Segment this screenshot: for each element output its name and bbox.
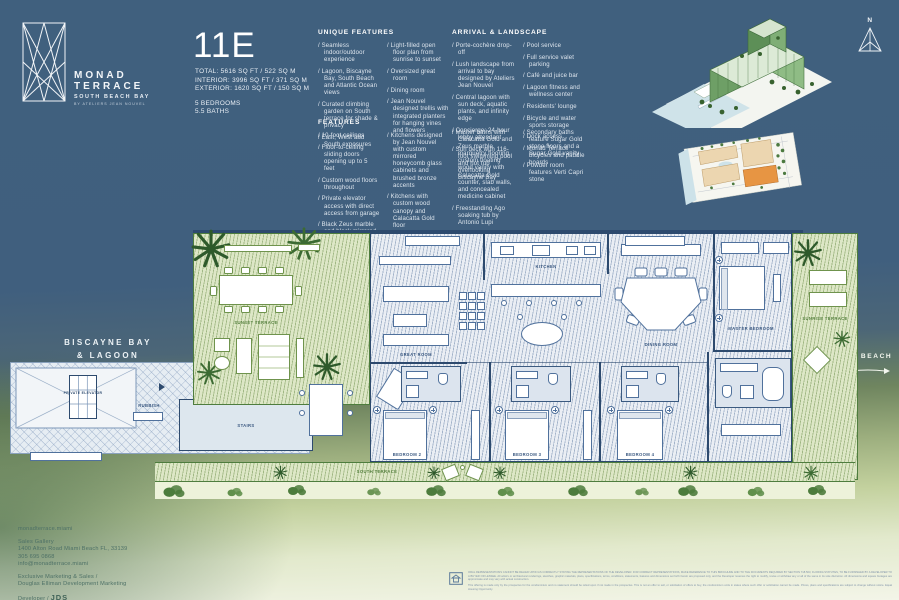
landscape-strip bbox=[155, 482, 855, 499]
vanity bbox=[626, 371, 648, 379]
dining-table-group bbox=[613, 266, 709, 338]
stool bbox=[551, 300, 557, 306]
feature-item: Floor-to-ceiling sliding doors opening u… bbox=[318, 145, 380, 173]
side-table-icon bbox=[551, 406, 559, 414]
feature-item: Freestanding Ago soaking tub by Antonio … bbox=[452, 206, 516, 227]
footer-gallery: Sales Gallery bbox=[18, 539, 127, 546]
vanity bbox=[516, 371, 538, 379]
feature-item: Kitchens with custom wood canopy and Cal… bbox=[387, 194, 449, 229]
built-in bbox=[405, 236, 460, 246]
built-in bbox=[625, 236, 685, 246]
lounge-chair bbox=[809, 270, 847, 285]
stool bbox=[576, 300, 582, 306]
chair bbox=[258, 267, 267, 274]
chair bbox=[347, 410, 353, 416]
unit-specs: TOTAL: 5616 SQ FT / 522 SQ M INTERIOR: 3… bbox=[195, 68, 309, 117]
unit-bedrooms: 5 BEDROOMS bbox=[195, 100, 309, 109]
sofa bbox=[383, 286, 449, 302]
wine-cell bbox=[459, 302, 467, 310]
bath bbox=[511, 366, 571, 402]
wine-cell bbox=[477, 302, 485, 310]
master-bath bbox=[715, 358, 791, 408]
shrub-icon bbox=[675, 484, 701, 497]
footer-marketing-2: Douglas Elliman Development Marketing bbox=[18, 581, 127, 588]
feature-item: Private elevator access with direct acce… bbox=[318, 196, 380, 217]
compass-icon bbox=[856, 26, 884, 54]
private-elevator-room bbox=[69, 375, 97, 419]
feature-item: Full service valet parking bbox=[523, 55, 587, 69]
wine-cell bbox=[459, 322, 467, 330]
cabinet-shelves bbox=[259, 335, 289, 379]
shrub-icon bbox=[365, 487, 383, 496]
bath bbox=[401, 366, 461, 402]
footer-email[interactable]: info@monadterrace.miami bbox=[18, 561, 127, 568]
south-terrace-label: SOUTH TERRACE bbox=[345, 469, 409, 474]
lounge-chair-angled bbox=[465, 464, 484, 482]
shrub-icon bbox=[745, 486, 767, 497]
closet bbox=[763, 242, 789, 254]
vanity bbox=[406, 371, 428, 379]
south-terrace: SOUTH TERRACE bbox=[155, 462, 855, 482]
pillow bbox=[507, 412, 547, 419]
lounge-chair bbox=[214, 338, 230, 352]
shrub-icon bbox=[225, 487, 245, 497]
floor-plan: SUNSET TERRACE GREAT ROOM bbox=[155, 230, 860, 500]
stool bbox=[526, 300, 532, 306]
lounge-chair bbox=[809, 292, 847, 307]
shower bbox=[516, 385, 529, 398]
shrub-icon bbox=[633, 487, 651, 496]
lounge-sofa bbox=[236, 338, 252, 374]
wine-cell bbox=[468, 322, 476, 330]
shrub-icon bbox=[423, 484, 449, 497]
outdoor-dining-table bbox=[219, 275, 293, 305]
chair bbox=[258, 306, 267, 313]
chair bbox=[210, 286, 217, 296]
shower bbox=[626, 385, 639, 398]
toilet bbox=[438, 373, 448, 385]
pillow bbox=[721, 268, 728, 310]
bench bbox=[773, 274, 781, 302]
wine-cell bbox=[477, 322, 485, 330]
brand-name-line1: MONAD bbox=[74, 70, 150, 81]
lounge-chair-angled bbox=[803, 346, 831, 374]
disclaimer-paragraph-1: ORAL REPRESENTATIONS CANNOT BE RELIED UP… bbox=[468, 571, 892, 582]
kitchen-label: KITCHEN bbox=[516, 264, 576, 269]
double-vanity bbox=[720, 363, 758, 372]
toilet bbox=[656, 373, 666, 385]
feature-item: Lagoon, Biscayne Bay, South Beach and At… bbox=[318, 69, 380, 97]
compass-north-label: N bbox=[856, 17, 884, 24]
kitchen-island bbox=[491, 284, 601, 297]
planter bbox=[296, 338, 304, 378]
palm-icon bbox=[793, 238, 823, 268]
side-table-round bbox=[460, 465, 465, 470]
feature-item: Residents' lounge bbox=[523, 104, 587, 111]
unit-exterior: EXTERIOR: 1620 SQ FT / 150 SQ M bbox=[195, 85, 309, 94]
feature-item: Kitchens designed by Jean Nouvel with cu… bbox=[387, 133, 449, 190]
palm-icon bbox=[833, 330, 851, 348]
bath bbox=[621, 366, 679, 402]
chair bbox=[275, 306, 284, 313]
feature-item: Seamless indoor/outdoor experience bbox=[318, 43, 380, 64]
wine-cell bbox=[477, 292, 485, 300]
site-key-plan bbox=[677, 127, 809, 212]
dock-platform bbox=[30, 452, 102, 461]
unit-number: 11E bbox=[193, 26, 256, 66]
feature-item: Dining room bbox=[387, 88, 449, 95]
chair bbox=[295, 286, 302, 296]
terrace-shelf bbox=[224, 245, 292, 252]
sunset-terrace: SUNSET TERRACE bbox=[193, 233, 370, 405]
brand-byline: BY ATELIERS JEAN NOUVEL bbox=[74, 102, 150, 106]
unit-baths: 5.5 BATHS bbox=[195, 108, 309, 117]
sink bbox=[532, 245, 550, 256]
arrival-title: ARRIVAL & LANDSCAPE bbox=[452, 29, 588, 36]
feature-item: Custom wood floors throughout bbox=[318, 178, 380, 192]
side-table-icon bbox=[715, 256, 723, 264]
chair bbox=[517, 314, 523, 320]
wall bbox=[483, 234, 485, 280]
developer-label: Developer / bbox=[18, 596, 49, 600]
footer-contact: monadterrace.miami Sales Gallery 1400 Al… bbox=[18, 526, 127, 600]
palm-icon bbox=[312, 352, 342, 382]
chair bbox=[275, 267, 284, 274]
feature-item: Master baths with Calacatta Gold and Zeu… bbox=[452, 130, 516, 201]
developer-name: JDS bbox=[51, 593, 69, 600]
footer-phone[interactable]: 305 695 0868 bbox=[18, 554, 127, 561]
shower bbox=[406, 385, 419, 398]
sunrise-terrace-label: SUNRISE TERRACE bbox=[797, 316, 853, 321]
lounge-chair-angled bbox=[441, 464, 460, 482]
coffee-table bbox=[393, 314, 427, 327]
feature-item: Bicycle and water sports storage bbox=[523, 116, 587, 130]
footer-address: 1400 Alton Road Miami Beach FL, 33139 bbox=[18, 546, 127, 553]
shrub-icon bbox=[285, 484, 309, 496]
side-table-icon bbox=[715, 314, 723, 322]
closet bbox=[583, 410, 592, 460]
brand-name-line2: TERRACE bbox=[74, 81, 150, 92]
kitchen-counter bbox=[491, 242, 601, 258]
toilet bbox=[722, 385, 732, 398]
sunrise-terrace: SUNRISE TERRACE bbox=[792, 233, 858, 480]
side-table-icon bbox=[665, 406, 673, 414]
feature-item: Café and juice bar bbox=[523, 73, 587, 80]
wall bbox=[607, 234, 609, 274]
bedroom4-label: BEDROOM 4 bbox=[611, 452, 669, 457]
wine-cell bbox=[459, 312, 467, 320]
wall bbox=[713, 234, 715, 352]
chair bbox=[224, 306, 233, 313]
great-room-label: GREAT ROOM bbox=[381, 352, 451, 357]
foyer-table bbox=[309, 384, 343, 436]
pillow bbox=[385, 412, 425, 419]
wall bbox=[599, 362, 601, 463]
feature-item: Secondary baths feature Sugar Gold stone… bbox=[523, 130, 587, 158]
side-table-icon bbox=[495, 406, 503, 414]
sofa bbox=[383, 334, 449, 346]
side-table-icon bbox=[373, 406, 381, 414]
wine-cell bbox=[459, 292, 467, 300]
interior: GREAT ROOM KITCHEN bbox=[370, 233, 792, 462]
appliance bbox=[500, 246, 514, 255]
legal-disclaimer: ORAL REPRESENTATIONS CANNOT BE RELIED UP… bbox=[468, 571, 892, 594]
shrub-icon bbox=[427, 466, 441, 480]
breakfast-table bbox=[521, 322, 563, 346]
footer-marketing-1: Exclusive Marketing & Sales / bbox=[18, 574, 127, 581]
feature-item: Powder room features Verti Capri stone bbox=[523, 163, 587, 184]
wine-cell bbox=[468, 302, 476, 310]
master-bed bbox=[719, 266, 765, 310]
unit-interior: INTERIOR: 3996 SQ FT / 371 SQ M bbox=[195, 77, 309, 86]
wall bbox=[707, 352, 709, 463]
chair bbox=[561, 314, 567, 320]
equal-housing-icon bbox=[449, 572, 463, 585]
wine-cell bbox=[468, 292, 476, 300]
master-bedroom-label: MASTER BEDROOM bbox=[711, 326, 791, 331]
wine-cell bbox=[477, 312, 485, 320]
terrace-box bbox=[298, 244, 320, 251]
shrub-icon bbox=[803, 465, 819, 481]
elevator-grid bbox=[70, 376, 96, 418]
shrub-icon bbox=[493, 466, 507, 480]
feature-item: Pool service bbox=[523, 43, 587, 50]
chair bbox=[347, 390, 353, 396]
feature-item: Porte-cochère drop-off bbox=[452, 43, 516, 57]
bedroom2-label: BEDROOM 2 bbox=[379, 452, 435, 457]
shrub-icon bbox=[161, 484, 187, 498]
brochure-page: MONAD TERRACE SOUTH BEACH BAY BY ATELIER… bbox=[0, 0, 899, 600]
footer-developer: Developer / JDS bbox=[18, 594, 127, 600]
feature-item: Light-filled open floor plan from sunris… bbox=[387, 43, 449, 64]
appliance bbox=[566, 246, 578, 255]
toilet bbox=[548, 373, 558, 385]
chair bbox=[299, 410, 305, 416]
feature-item: Oversized great room bbox=[387, 69, 449, 83]
closet bbox=[721, 242, 759, 254]
wall bbox=[489, 362, 491, 463]
brand-subtitle: SOUTH BEACH BAY bbox=[74, 94, 150, 100]
brand-block: MONAD TERRACE SOUTH BEACH BAY BY ATELIER… bbox=[74, 70, 150, 106]
terrace-cabinet bbox=[258, 334, 290, 380]
appliance bbox=[584, 246, 596, 255]
feature-item: Lush landscape from arrival to bay desig… bbox=[452, 62, 516, 90]
feature-item: Central lagoon with sun deck, aquatic pl… bbox=[452, 95, 516, 123]
private-elevator-label: PRIVATE ELEVATOR bbox=[59, 391, 107, 395]
wall bbox=[715, 350, 793, 352]
wine-rack bbox=[459, 292, 485, 330]
footer-website[interactable]: monadterrace.miami bbox=[18, 526, 127, 533]
chair bbox=[299, 390, 305, 396]
monad-logo-icon bbox=[22, 22, 66, 102]
pillow bbox=[619, 412, 661, 419]
unit-total: TOTAL: 5616 SQ FT / 522 SQ M bbox=[195, 68, 309, 77]
feature-item: 10-foot ceilings bbox=[318, 133, 380, 140]
side-table-icon bbox=[429, 406, 437, 414]
shrub-icon bbox=[805, 484, 829, 496]
feature-item: Lagoon fitness and wellness center bbox=[523, 85, 587, 99]
shower bbox=[740, 385, 754, 399]
disclaimer-paragraph-2: This offering is made only by the prospe… bbox=[468, 584, 892, 591]
bedroom3-label: BEDROOM 3 bbox=[499, 452, 555, 457]
hall-wall bbox=[371, 362, 709, 363]
stool bbox=[501, 300, 507, 306]
chair bbox=[224, 267, 233, 274]
chair bbox=[241, 306, 250, 313]
building-rendering bbox=[652, 10, 837, 128]
wine-cell bbox=[468, 312, 476, 320]
shrub-icon bbox=[273, 465, 288, 480]
shrub-icon bbox=[683, 465, 698, 480]
shrub-icon bbox=[565, 484, 591, 497]
side-table-round bbox=[214, 356, 230, 370]
side-table-icon bbox=[607, 406, 615, 414]
media-console bbox=[379, 256, 451, 265]
shrub-icon bbox=[495, 486, 517, 497]
sunset-terrace-label: SUNSET TERRACE bbox=[226, 320, 286, 325]
chair bbox=[241, 267, 250, 274]
dining-room-label: DINING ROOM bbox=[626, 342, 696, 347]
bathtub bbox=[762, 367, 784, 401]
unique-features-title: UNIQUE FEATURES bbox=[318, 29, 450, 36]
features-title: FEATURES bbox=[318, 119, 450, 126]
closet bbox=[471, 410, 480, 460]
dresser bbox=[721, 424, 781, 436]
